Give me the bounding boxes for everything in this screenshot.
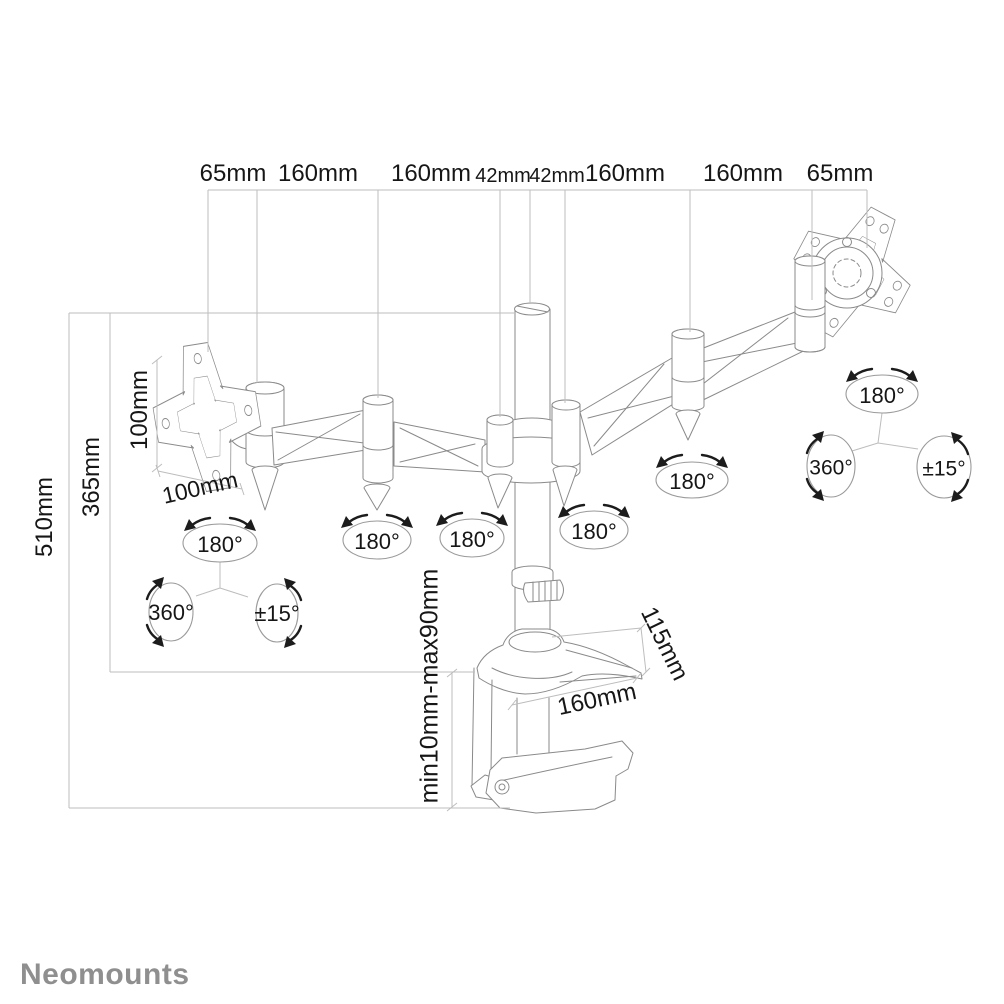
rotation-label-right-swivel: 180° — [859, 385, 905, 407]
rotation-label-left-swivel: 180° — [197, 534, 243, 556]
arm-joint-3 — [487, 415, 513, 508]
height-adjust-ring — [512, 566, 564, 602]
mount-line-drawing — [0, 0, 1004, 1004]
arm-joint-4 — [552, 400, 580, 506]
dim-label-top-65mm-left: 65mm — [200, 162, 267, 186]
dim-label-vesa-height: 100mm — [128, 370, 152, 450]
rotation-label-right-360: 360° — [809, 458, 852, 479]
dim-label-top-160mm-3: 160mm — [585, 162, 665, 186]
rotation-label-joint2: 180° — [354, 531, 400, 553]
dim-label-desk-thickness: min10mm-max90mm — [418, 569, 443, 804]
left-group-connector — [196, 562, 248, 597]
dim-label-top-42mm-2: 42mm — [529, 166, 585, 186]
arm-left-inner — [394, 422, 485, 472]
dim-label-top-160mm-2: 160mm — [391, 162, 471, 186]
neomounts-logo: Neomounts — [20, 958, 190, 992]
rotation-label-joint3: 180° — [449, 529, 495, 551]
arm-joint-5 — [672, 329, 704, 440]
dim-label-arm-height: 365mm — [80, 437, 104, 517]
rotation-label-joint4: 180° — [571, 521, 617, 543]
dim-label-top-65mm-right: 65mm — [807, 162, 874, 186]
dim-label-total-height: 510mm — [33, 477, 57, 557]
rotation-label-right-tilt: ±15° — [922, 459, 965, 480]
arm-left-outer — [272, 410, 378, 465]
right-vesa-swivel-joint — [795, 256, 825, 352]
arm-joint-2 — [363, 395, 393, 510]
dim-label-top-42mm-1: 42mm — [475, 166, 531, 186]
rotation-label-left-tilt: ±15° — [254, 603, 299, 625]
product-dimension-diagram: 65mm 160mm 160mm 42mm 42mm 160mm 160mm 6… — [0, 0, 1004, 1004]
dim-label-top-160mm-1: 160mm — [278, 162, 358, 186]
dim-label-top-160mm-4: 160mm — [703, 162, 783, 186]
rotation-label-left-360: 360° — [148, 602, 194, 624]
right-group-connector — [852, 413, 918, 451]
rotation-label-joint5: 180° — [669, 471, 715, 493]
